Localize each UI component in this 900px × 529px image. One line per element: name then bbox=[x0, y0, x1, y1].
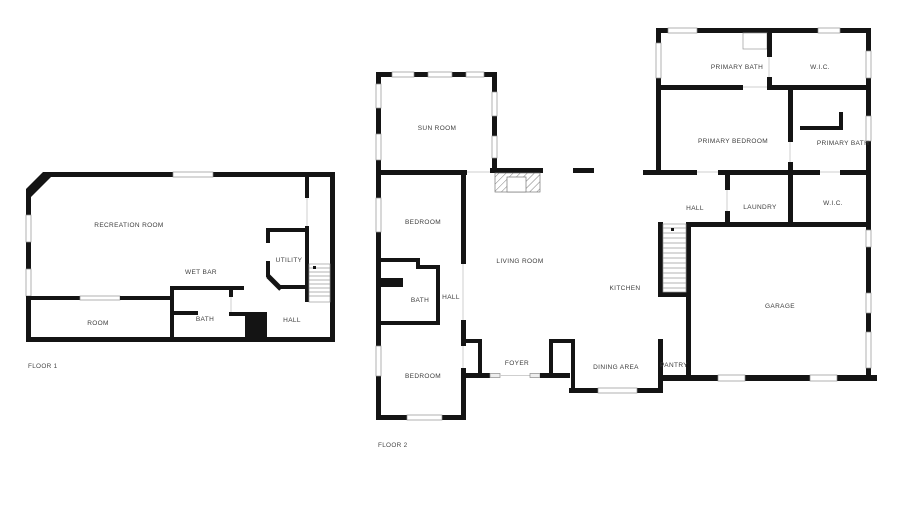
room-label-living-room: LIVING ROOM bbox=[496, 258, 543, 265]
stair-direction-marker bbox=[313, 266, 316, 269]
chimney-block bbox=[245, 312, 267, 340]
room-label-bedroom-upper: BEDROOM bbox=[405, 219, 441, 226]
entry-door-symbol-right bbox=[530, 374, 540, 378]
room-label-bedroom-lower: BEDROOM bbox=[405, 373, 441, 380]
room-label-wic-upper: W.I.C. bbox=[810, 64, 830, 71]
room-label-utility: UTILITY bbox=[276, 257, 303, 264]
room-label-bath-f2: BATH bbox=[411, 297, 429, 304]
shower-niche bbox=[743, 33, 767, 49]
floorplan-canvas: RECREATION ROOM WET BAR UTILITY ROOM BAT… bbox=[0, 0, 900, 529]
floor1-windows bbox=[26, 172, 213, 296]
room-label-primary-bath-top: PRIMARY BATH bbox=[711, 64, 763, 71]
room-label-sun-room: SUN ROOM bbox=[418, 125, 457, 132]
garage-window-right bbox=[810, 375, 837, 381]
garage-walls bbox=[658, 222, 877, 381]
entry-door-symbol-left bbox=[490, 374, 500, 378]
room-label-hall-center: HALL bbox=[442, 294, 460, 301]
floor2-caption: FLOOR 2 bbox=[378, 442, 408, 449]
living-room-wall-stub bbox=[573, 168, 594, 173]
room-label-laundry: LAUNDRY bbox=[743, 204, 777, 211]
room-label-wet-bar: WET BAR bbox=[185, 269, 217, 276]
floorplan-svg: RECREATION ROOM WET BAR UTILITY ROOM BAT… bbox=[0, 0, 900, 529]
floor1-caption: FLOOR 1 bbox=[28, 363, 58, 370]
room-label-dining-area: DINING AREA bbox=[593, 364, 639, 371]
room-label-recreation-room: RECREATION ROOM bbox=[94, 222, 163, 229]
fireplace bbox=[490, 168, 543, 192]
room-label-hall-f1: HALL bbox=[283, 317, 301, 324]
garage-window-left bbox=[718, 375, 745, 381]
room-label-pantry: PANTRY bbox=[660, 362, 688, 369]
room-label-foyer: FOYER bbox=[505, 360, 529, 367]
room-label-primary-bath-right: PRIMARY BATH bbox=[817, 140, 869, 147]
floor1-plan: RECREATION ROOM WET BAR UTILITY ROOM BAT… bbox=[26, 172, 335, 370]
room-label-kitchen: KITCHEN bbox=[610, 285, 641, 292]
room-label-room: ROOM bbox=[87, 320, 109, 327]
floor2-stairs bbox=[658, 222, 686, 297]
room-label-garage: GARAGE bbox=[765, 303, 795, 310]
room-label-bath-f1: BATH bbox=[196, 316, 214, 323]
primary-suite-walls bbox=[643, 28, 871, 222]
floor1-interior-walls bbox=[26, 172, 309, 341]
room-label-hall-right: HALL bbox=[686, 205, 704, 212]
room-label-primary-bedroom: PRIMARY BEDROOM bbox=[698, 138, 768, 145]
room-label-wic-lower: W.I.C. bbox=[823, 200, 843, 207]
floor2-plan: SUN ROOM BEDROOM LIVING ROOM BATH HALL B… bbox=[376, 28, 877, 449]
floor1-stairs bbox=[309, 264, 330, 302]
stair-direction-marker bbox=[671, 228, 674, 231]
